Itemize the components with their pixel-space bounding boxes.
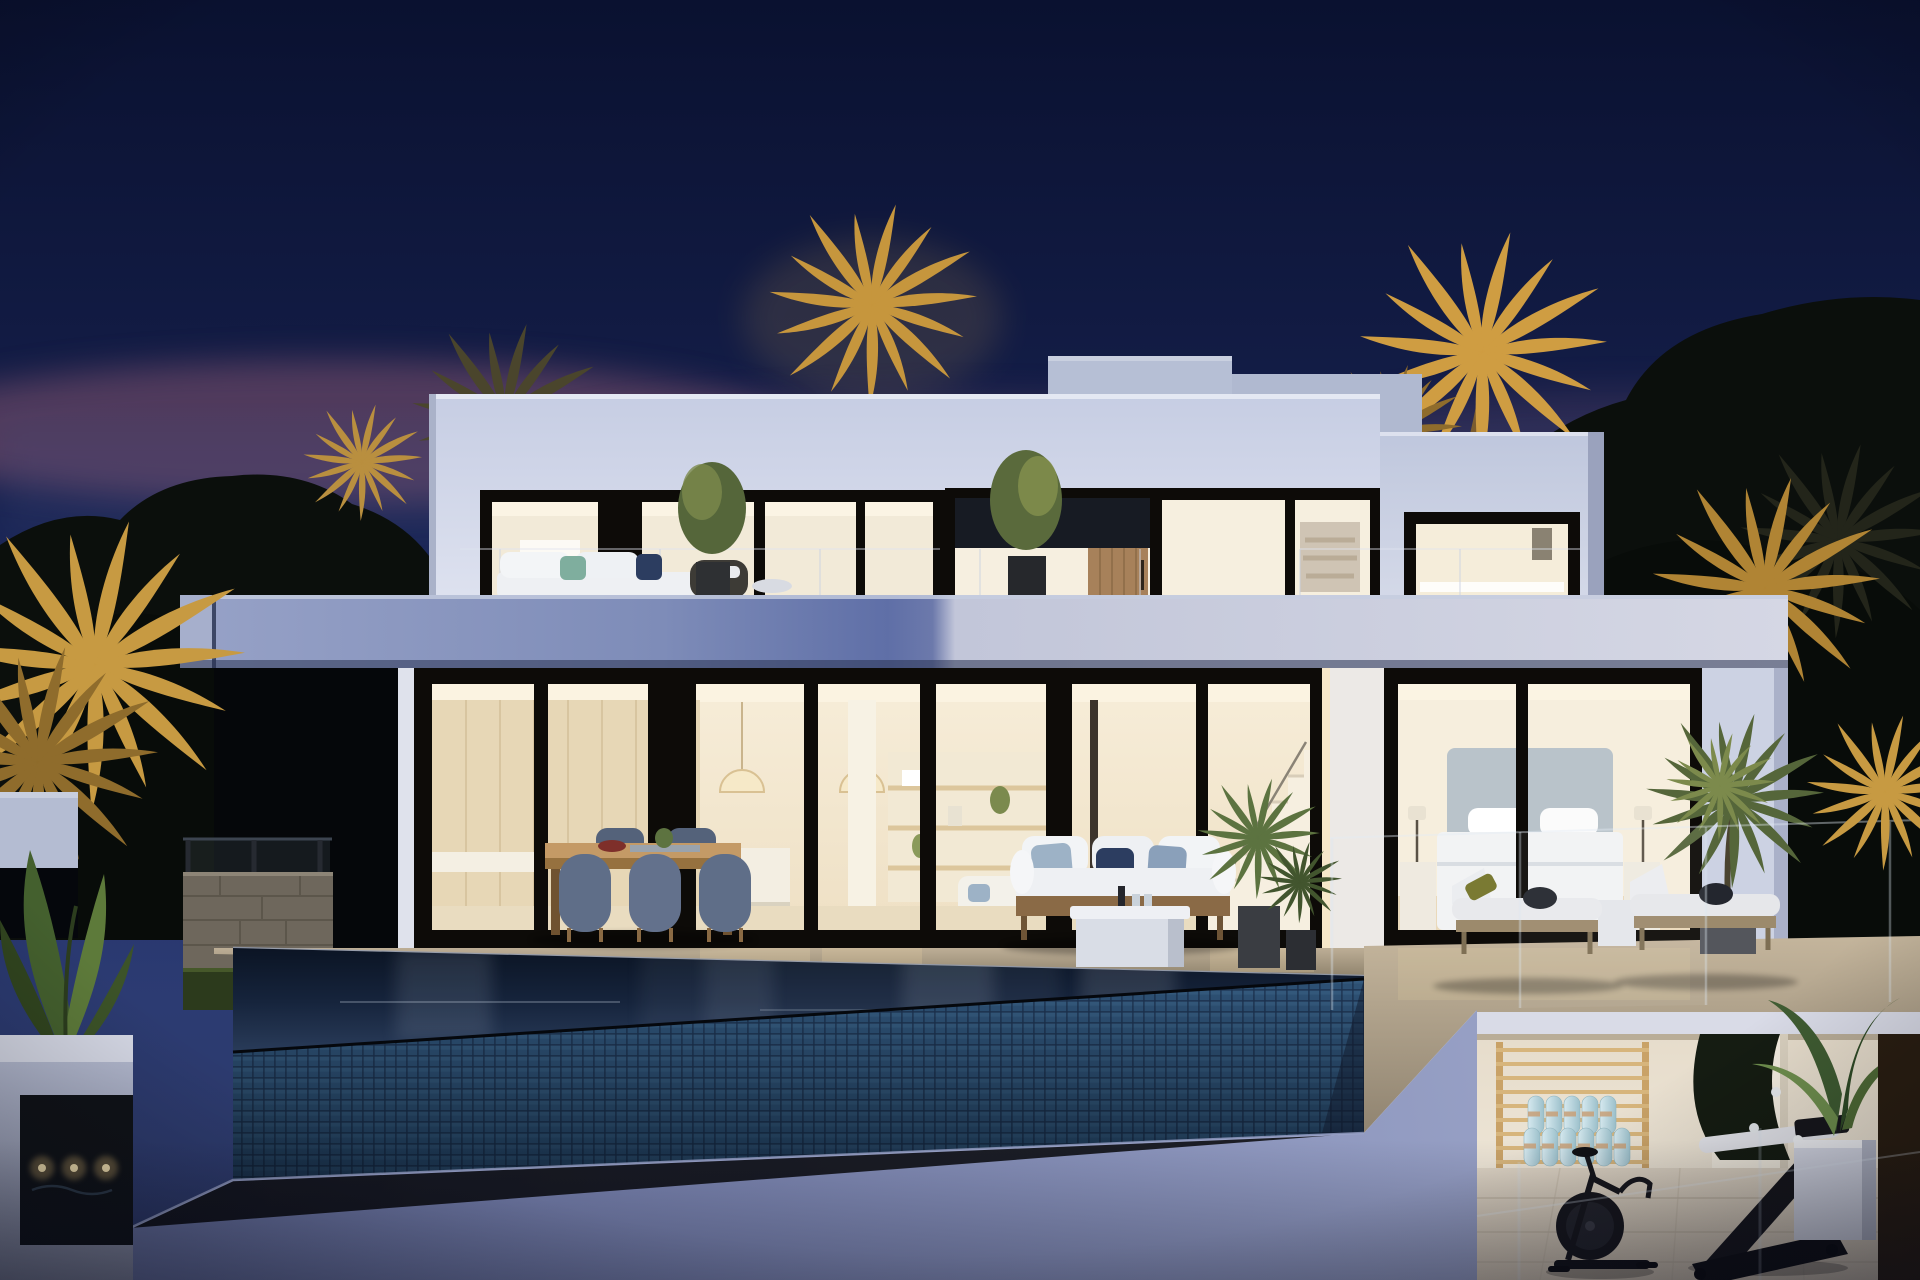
color-grade (0, 0, 1920, 1280)
bottom-darkening (0, 1140, 1920, 1280)
villa-dusk-scene (0, 0, 1920, 1280)
villa-render-canvas (0, 0, 1920, 1280)
vignette (0, 0, 1920, 1280)
